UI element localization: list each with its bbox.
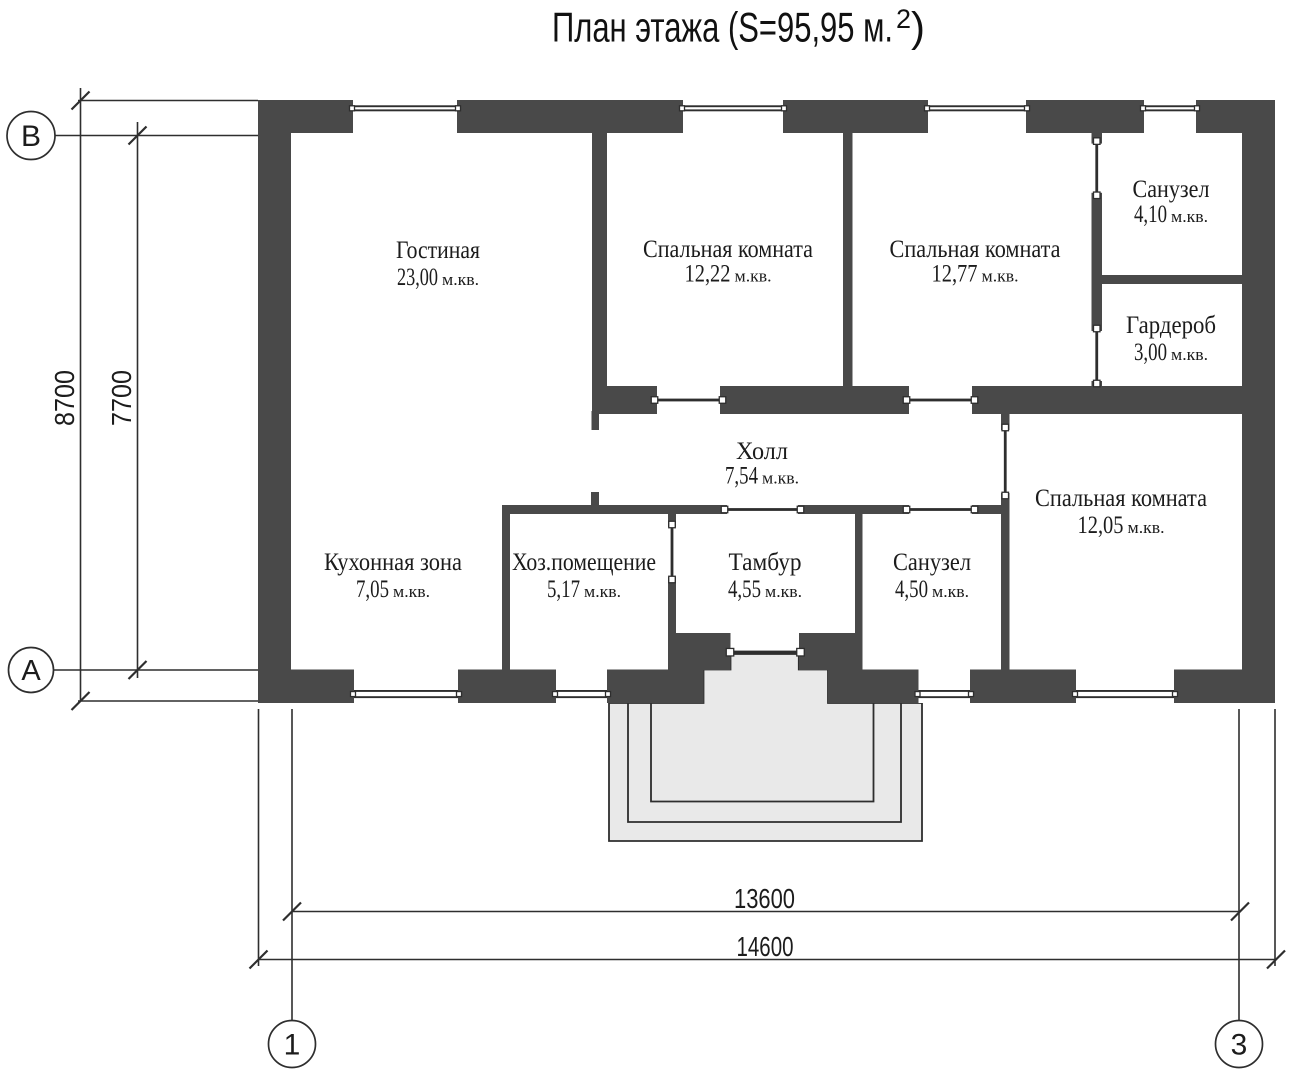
svg-text:м.кв.: м.кв. (765, 582, 802, 601)
svg-text:1: 1 (284, 1029, 301, 1062)
svg-text:7,54: 7,54 (725, 463, 758, 490)
svg-text:м.кв.: м.кв. (442, 270, 479, 289)
svg-text:14600: 14600 (737, 931, 794, 962)
svg-text:4,55: 4,55 (728, 576, 761, 603)
svg-text:4,50: 4,50 (895, 576, 928, 603)
svg-text:Тамбур: Тамбур (729, 549, 802, 576)
svg-text:Холл: Холл (736, 438, 788, 465)
svg-text:3: 3 (1231, 1029, 1248, 1062)
svg-text:План этажа (S=95,95 м.: План этажа (S=95,95 м. (552, 4, 893, 51)
svg-text:Гостиная: Гостиная (396, 237, 480, 264)
svg-text:м.кв.: м.кв. (932, 582, 969, 601)
svg-text:Кухонная зона: Кухонная зона (324, 549, 462, 576)
svg-text:Хоз.помещение: Хоз.помещение (512, 549, 656, 576)
svg-text:7,05: 7,05 (356, 576, 389, 603)
svg-text:23,00: 23,00 (397, 264, 438, 291)
svg-text:8700: 8700 (49, 370, 80, 426)
svg-text:Гардероб: Гардероб (1126, 312, 1216, 339)
svg-text:3,00: 3,00 (1134, 339, 1167, 366)
svg-text:7700: 7700 (106, 370, 137, 426)
svg-text:12,77: 12,77 (932, 261, 978, 288)
svg-text:Санузел: Санузел (1133, 176, 1210, 203)
svg-text:м.кв.: м.кв. (1171, 207, 1208, 226)
svg-text:Санузел: Санузел (893, 549, 971, 576)
svg-text:12,22: 12,22 (685, 261, 731, 288)
svg-text:Спальная комната: Спальная комната (890, 236, 1061, 263)
svg-text:А: А (21, 655, 41, 687)
svg-text:5,17: 5,17 (547, 576, 580, 603)
svg-text:): ) (911, 4, 925, 51)
svg-text:Спальная комната: Спальная комната (1035, 485, 1207, 512)
svg-text:м.кв.: м.кв. (393, 582, 430, 601)
svg-text:м.кв.: м.кв. (762, 469, 799, 488)
svg-text:12,05: 12,05 (1078, 512, 1124, 539)
svg-text:м.кв.: м.кв. (735, 267, 772, 286)
svg-text:м.кв.: м.кв. (1171, 345, 1208, 364)
svg-text:м.кв.: м.кв. (584, 582, 621, 601)
svg-text:м.кв.: м.кв. (1128, 518, 1165, 537)
svg-text:13600: 13600 (734, 883, 795, 914)
svg-text:м.кв.: м.кв. (982, 267, 1019, 286)
svg-text:В: В (21, 120, 41, 153)
svg-text:2: 2 (896, 4, 911, 34)
svg-text:4,10: 4,10 (1134, 201, 1167, 228)
svg-text:Спальная комната: Спальная комната (643, 236, 813, 263)
